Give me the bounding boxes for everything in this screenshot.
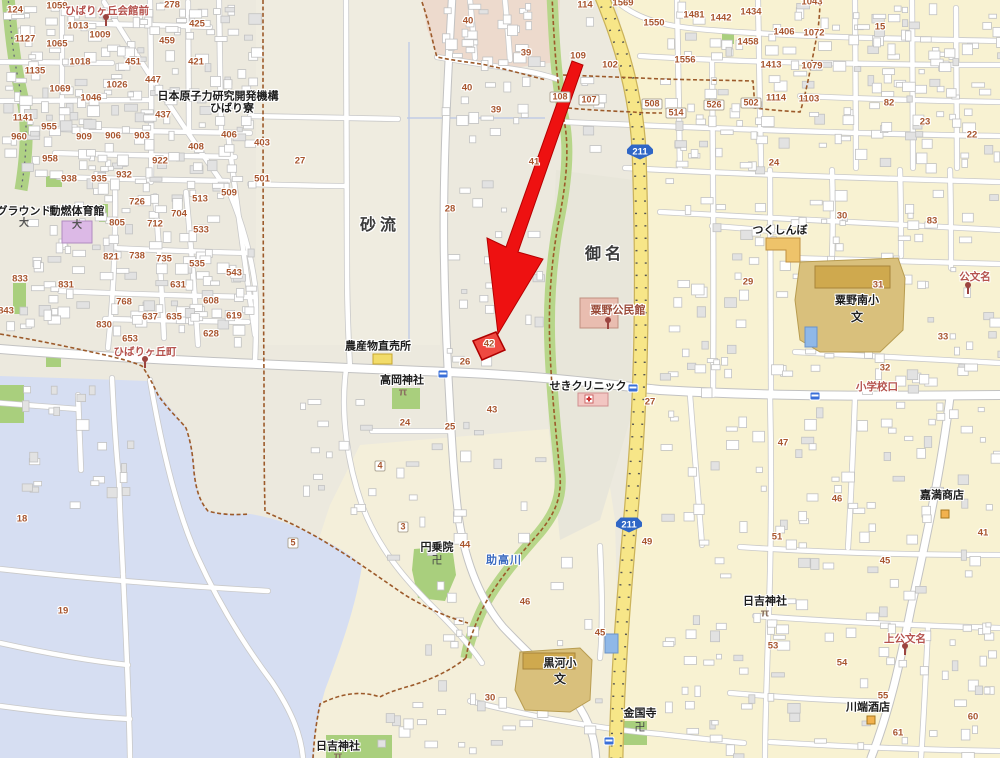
school-building-kurokawa: [523, 653, 575, 669]
map-base-svg: [0, 0, 1000, 758]
school-building-south: [815, 266, 890, 288]
school-pool-south: [805, 327, 817, 347]
farm-shop-building: [373, 354, 392, 364]
map-canvas[interactable]: 1059124278425101310091127106545910184514…: [0, 0, 1000, 758]
community-center-building: [580, 298, 618, 328]
pool-45: [605, 634, 618, 653]
gym-building: [62, 221, 92, 243]
